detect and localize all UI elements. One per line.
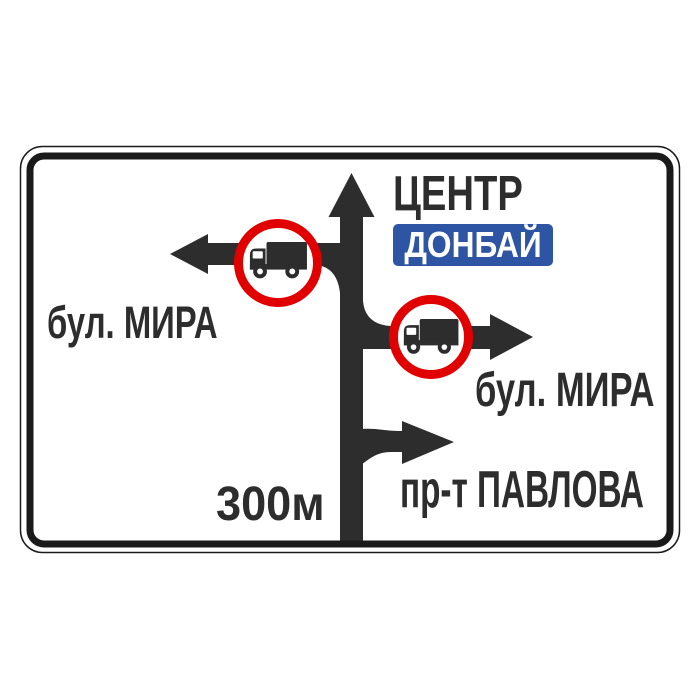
- street-label-mira-right: бул. МИРА: [475, 367, 654, 415]
- street-label-mira-left: бул. МИРА: [47, 300, 218, 345]
- no-trucks-sign-right: [394, 300, 469, 375]
- route-badge: ДОНБАЙ: [393, 224, 553, 266]
- direction-sign-diagram: [0, 0, 700, 700]
- direction-label-center: ЦЕНТР: [393, 170, 523, 219]
- no-trucks-sign-left: [239, 224, 318, 303]
- avenue-label-pavlova: пр-т ПАВЛОВА: [400, 464, 644, 516]
- route-badge-label: ДОНБАЙ: [404, 227, 541, 263]
- road-sign-image: ЦЕНТР ДОНБАЙ бул. МИРА бул. МИРА пр-т ПА…: [0, 0, 700, 700]
- distance-label: 300м: [216, 481, 325, 529]
